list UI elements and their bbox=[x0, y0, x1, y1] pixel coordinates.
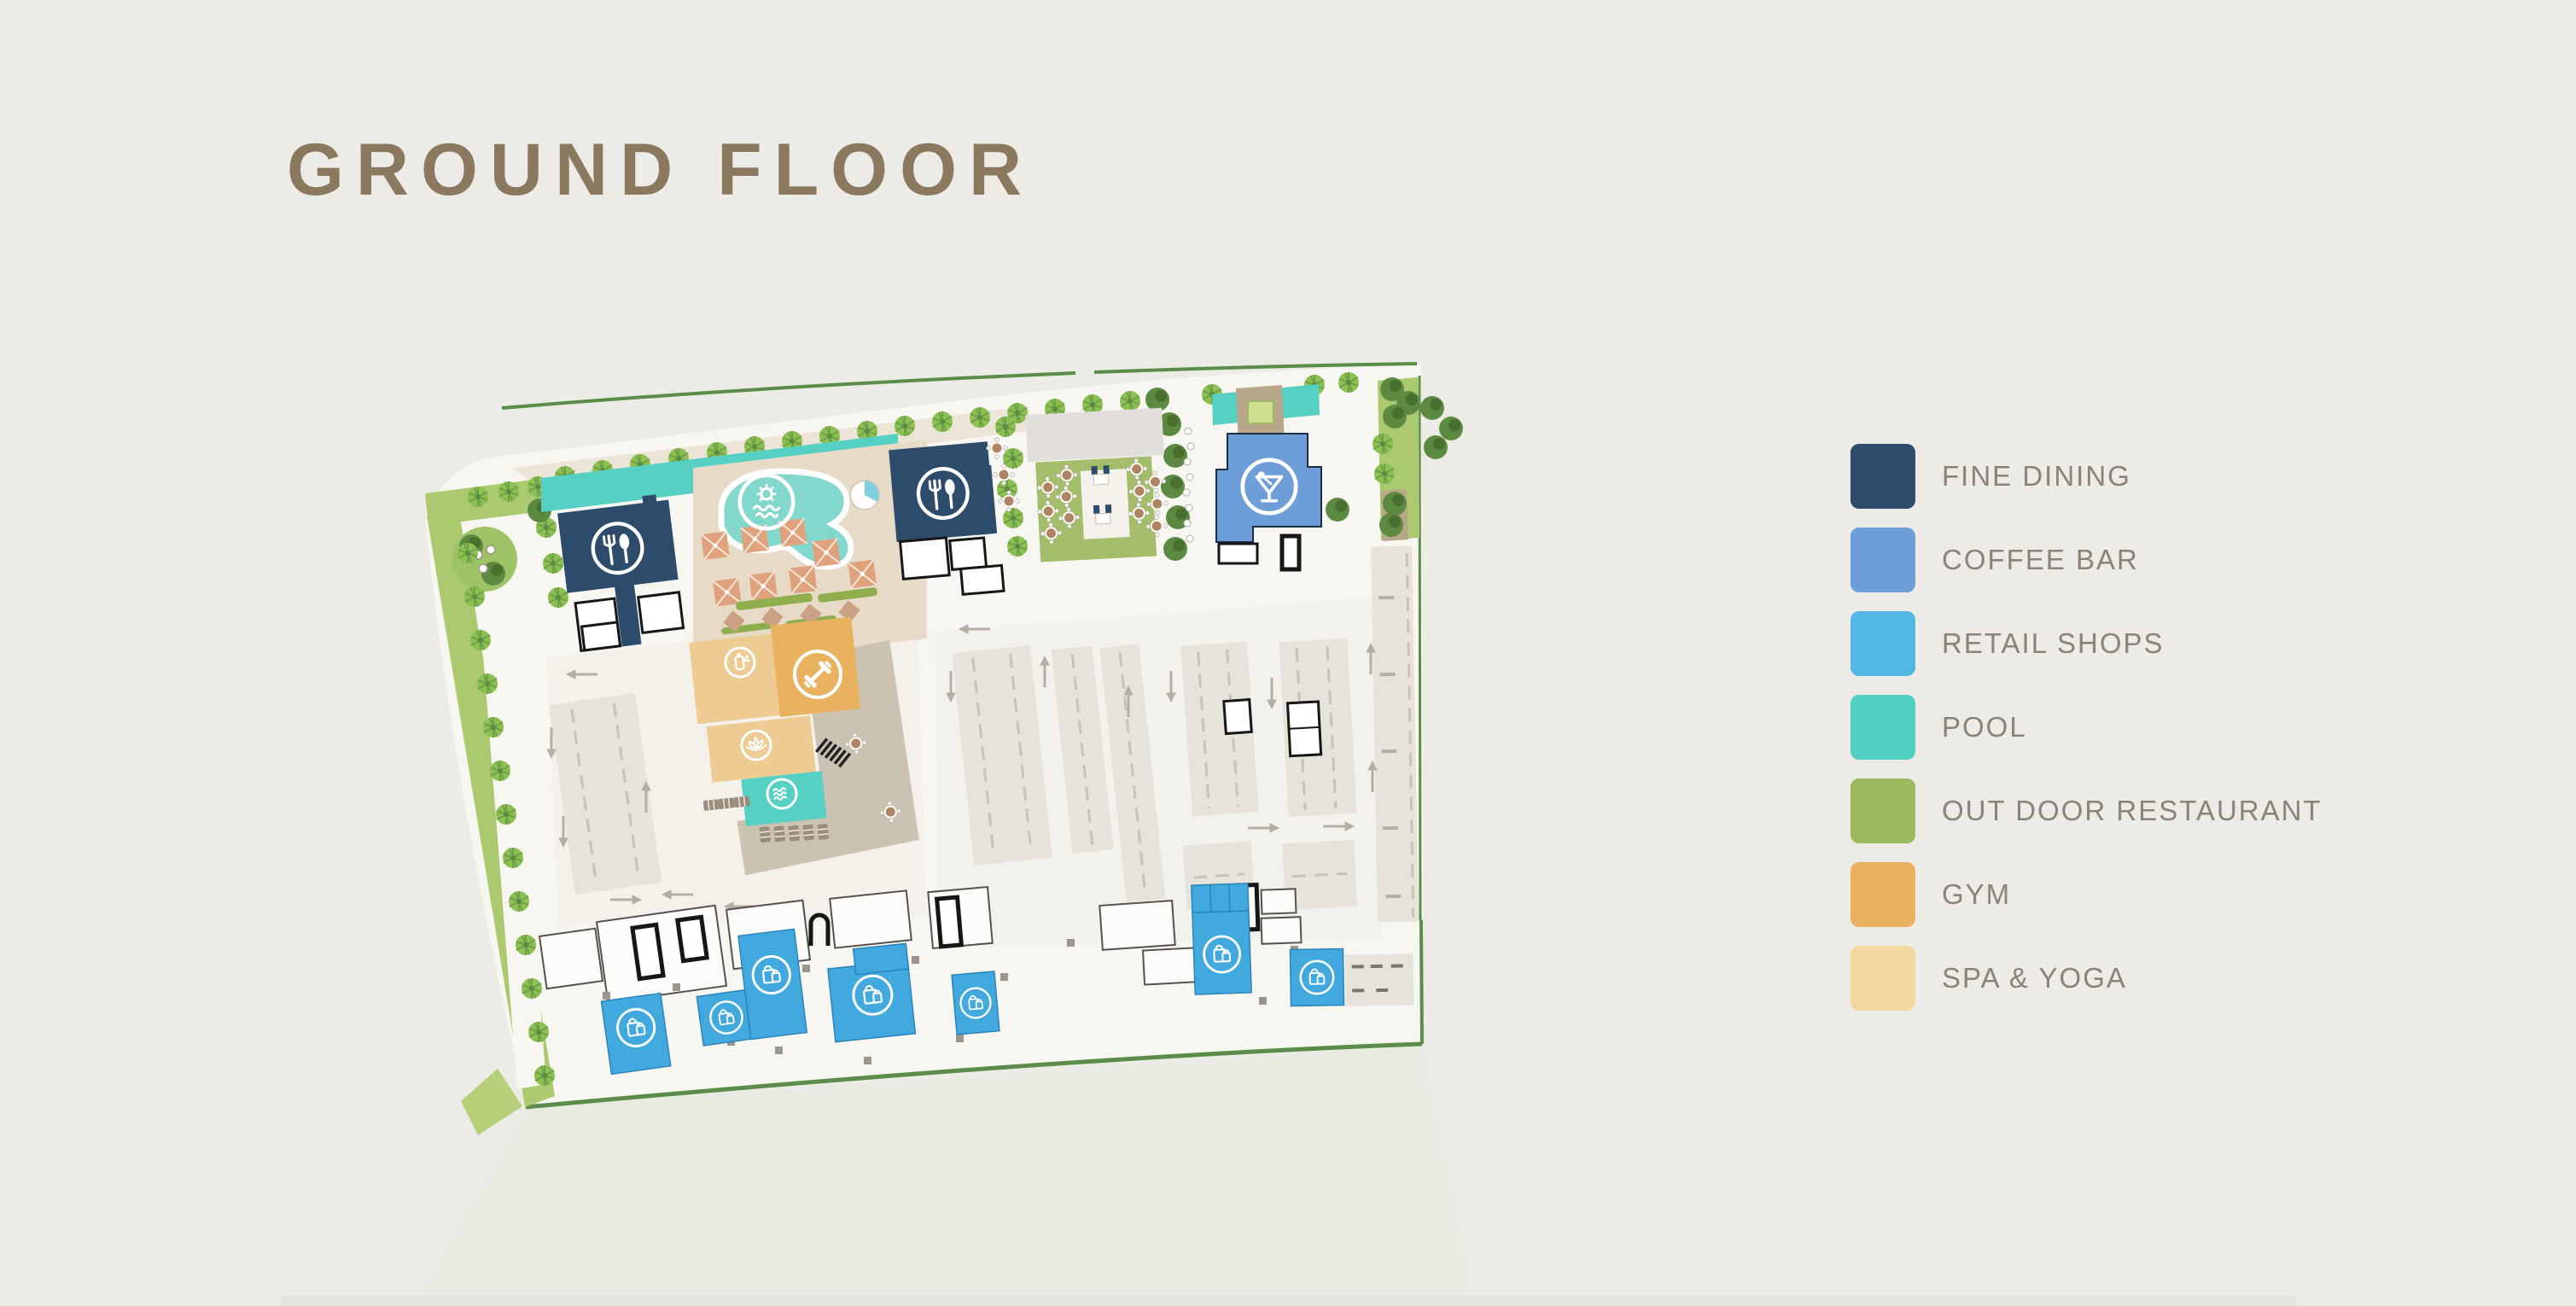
spa-room bbox=[689, 634, 780, 725]
legend-item-retail-shops: RETAIL SHOPS bbox=[1850, 611, 2322, 676]
legend-item-outdoor-restaurant: OUT DOOR RESTAURANT bbox=[1850, 778, 2322, 843]
retail-shop-3 bbox=[738, 929, 807, 1039]
legend-item-coffee-bar: COFFEE BAR bbox=[1850, 528, 2322, 592]
ground-floor-page: GROUND FLOOR bbox=[0, 0, 2576, 1306]
legend-swatch-spa-yoga bbox=[1850, 946, 1915, 1011]
legend-label-spa-yoga: SPA & YOGA bbox=[1942, 962, 2127, 994]
legend: FINE DINING COFFEE BAR RETAIL SHOPS POOL… bbox=[1850, 444, 2322, 1029]
legend-label-outdoor-restaurant: OUT DOOR RESTAURANT bbox=[1942, 795, 2322, 827]
gym-room bbox=[771, 617, 861, 717]
legend-swatch-fine-dining bbox=[1850, 444, 1915, 509]
legend-item-fine-dining: FINE DINING bbox=[1850, 444, 2322, 509]
outdoor-restaurant bbox=[1025, 408, 1170, 563]
retail-shop-5 bbox=[952, 971, 1000, 1035]
legend-swatch-retail-shops bbox=[1850, 611, 1915, 676]
retail-shop-1 bbox=[601, 994, 670, 1075]
legend-item-gym: GYM bbox=[1850, 862, 2322, 927]
legend-label-coffee-bar: COFFEE BAR bbox=[1942, 544, 2139, 576]
legend-item-pool: POOL bbox=[1850, 695, 2322, 760]
retail-shop-6 bbox=[1192, 883, 1251, 994]
legend-swatch-gym bbox=[1850, 862, 1915, 927]
legend-label-gym: GYM bbox=[1942, 878, 2011, 911]
legend-item-spa-yoga: SPA & YOGA bbox=[1850, 946, 2322, 1011]
legend-label-retail-shops: RETAIL SHOPS bbox=[1942, 627, 2165, 660]
legend-label-pool: POOL bbox=[1942, 711, 2027, 743]
legend-swatch-coffee-bar bbox=[1850, 528, 1915, 592]
legend-swatch-pool bbox=[1850, 695, 1915, 760]
legend-label-fine-dining: FINE DINING bbox=[1942, 460, 2131, 493]
fine-dining-central bbox=[889, 441, 1004, 600]
legend-swatch-outdoor-restaurant bbox=[1850, 778, 1915, 843]
retail-shop-7 bbox=[1290, 948, 1343, 1006]
